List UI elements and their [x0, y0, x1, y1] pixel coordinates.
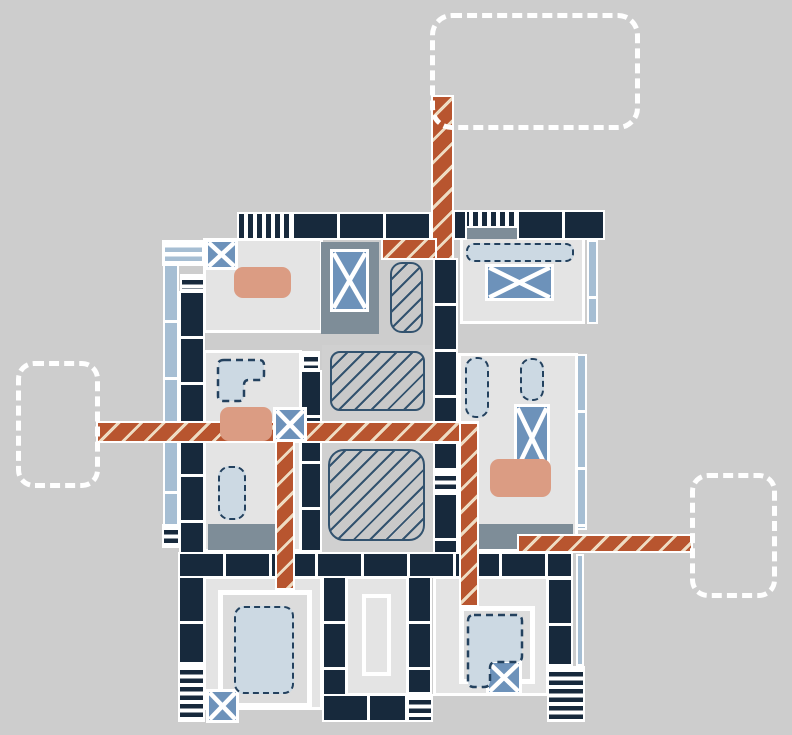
dashed-lshape-mid-left [217, 359, 265, 403]
door-stripes-bottom-right [547, 666, 585, 722]
wall-bottom-right-column [547, 578, 573, 666]
door-stripes-left-band [162, 524, 180, 548]
door-stripes-bottom-mid [407, 694, 433, 722]
wall-top-stub [453, 210, 467, 240]
hatch-zone-middle [330, 351, 425, 411]
wall-top-hatched-left [237, 212, 292, 240]
corridor-right-vertical [461, 424, 477, 605]
xbox-slate-room [330, 249, 369, 312]
callout-placeholder-right[interactable] [690, 473, 777, 598]
window-band-bottom-right [576, 554, 584, 666]
dashed-item-top-right [466, 243, 574, 262]
corridor-top-horizontal [383, 240, 435, 258]
window-band-mid-right [576, 354, 587, 530]
wall-left-lower [178, 576, 205, 664]
door-stripes-mid-column [302, 351, 320, 370]
window-box-corner [162, 240, 205, 266]
dashed-item-mid-left-small [218, 466, 246, 520]
wall-top-right [517, 210, 605, 240]
door-stripes-left-lower [178, 664, 205, 722]
xbox-top-left-corner [205, 239, 238, 270]
hatch-zone-tall [390, 262, 423, 333]
door-stripes-left-top [180, 274, 205, 291]
corridor-center-vertical [277, 420, 293, 588]
dashed-item-bottom-left [234, 606, 294, 694]
salmon-rug-top-left [234, 267, 291, 298]
dashed-pshape-bottom-right [467, 614, 524, 689]
wall-bottom-left-column [322, 576, 347, 696]
slate-band-mid-left [208, 524, 275, 550]
wall-top-hatched-right [462, 210, 517, 228]
door-stripes-spine [433, 470, 458, 493]
floor-plan-canvas [0, 0, 792, 735]
xbox-top-right [485, 264, 554, 301]
wall-bottom-mid-column [407, 576, 432, 694]
hatch-zone-large [328, 449, 425, 541]
corridor-right-horizontal [519, 536, 691, 551]
xbox-bottom-left [206, 689, 239, 723]
wall-mid-column [300, 370, 322, 552]
callout-placeholder-left[interactable] [16, 361, 100, 488]
wall-bottom-left-row [322, 694, 407, 722]
white-outline-rect [362, 594, 391, 676]
xbox-mid-left [273, 407, 307, 442]
salmon-rug-mid-right [490, 459, 551, 497]
wall-bottom-row [178, 552, 573, 578]
salmon-rug-mid-left [220, 407, 272, 441]
dashed-item-mid-right-1 [465, 357, 489, 418]
callout-placeholder-top[interactable] [430, 13, 640, 130]
dashed-item-mid-right-2 [520, 358, 544, 401]
window-band-top-right [587, 240, 598, 324]
window-band-left [163, 264, 179, 546]
wall-top-left [292, 212, 432, 240]
